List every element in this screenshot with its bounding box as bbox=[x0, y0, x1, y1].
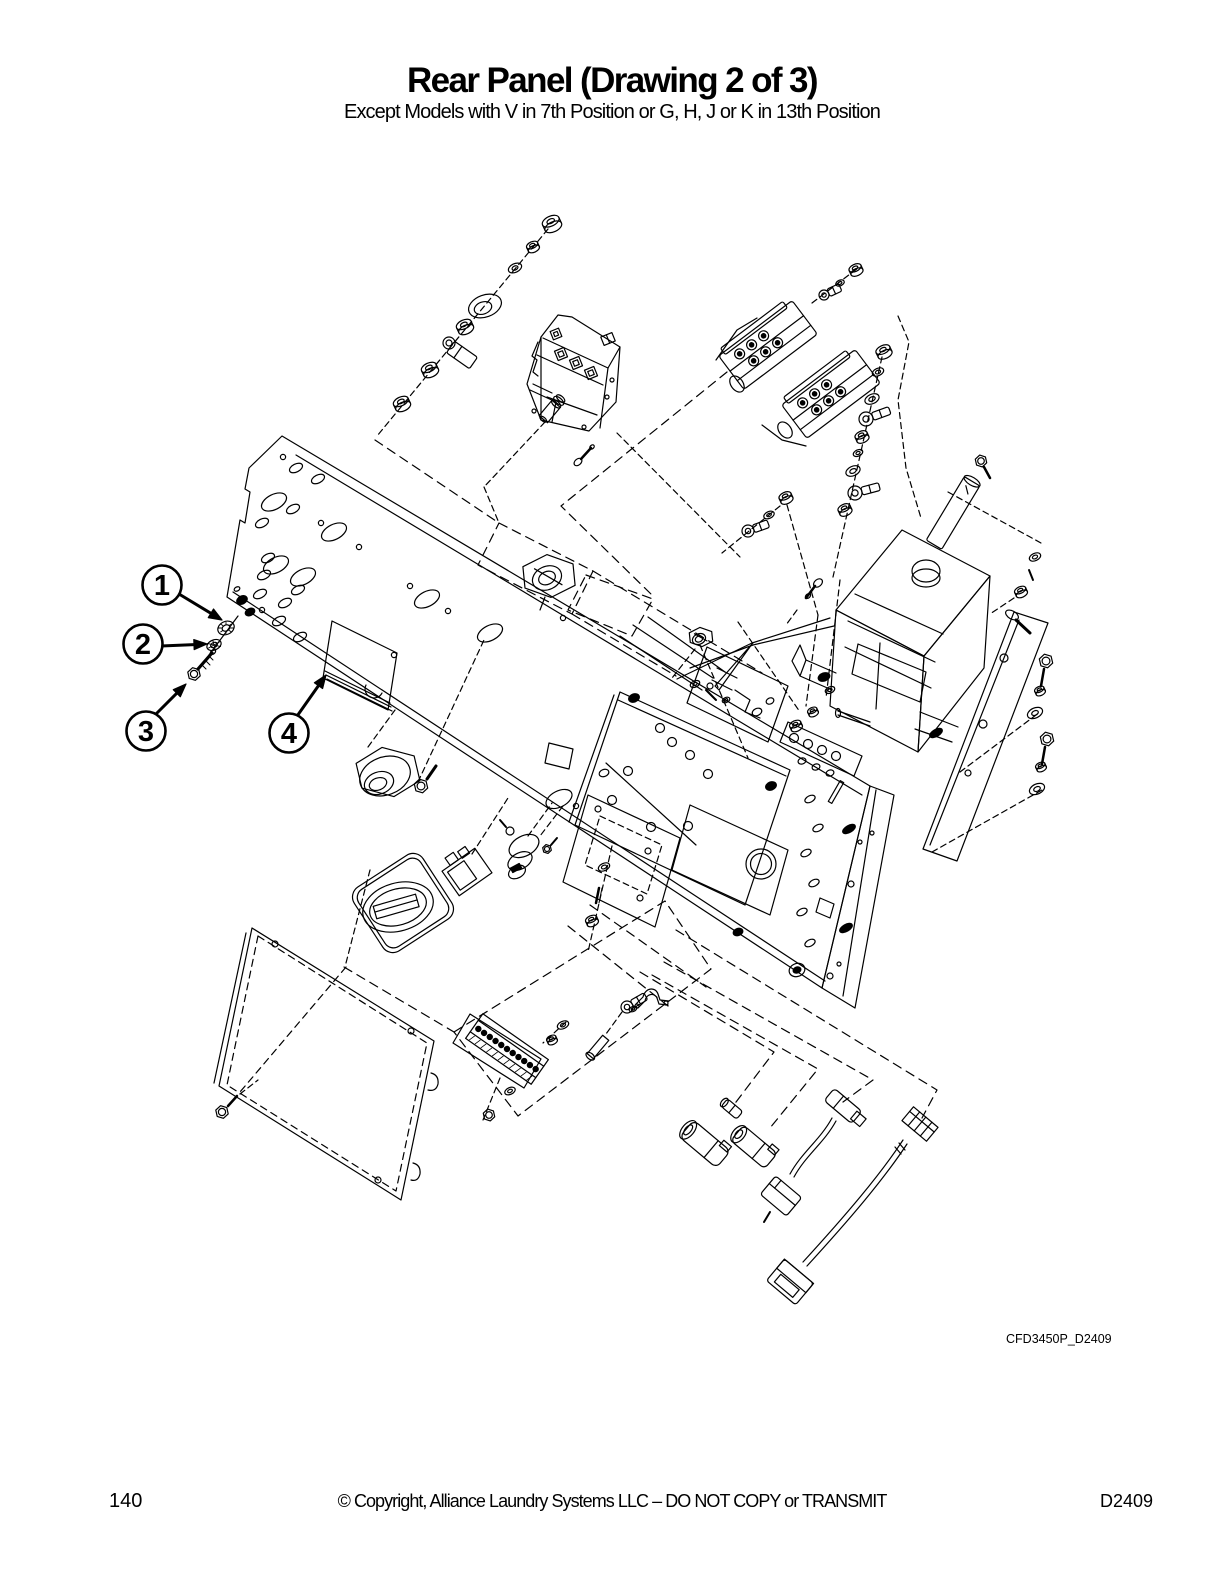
svg-text:2: 2 bbox=[135, 629, 151, 661]
svg-text:4: 4 bbox=[281, 718, 297, 750]
svg-text:3: 3 bbox=[138, 716, 154, 748]
svg-text:1: 1 bbox=[154, 570, 170, 602]
